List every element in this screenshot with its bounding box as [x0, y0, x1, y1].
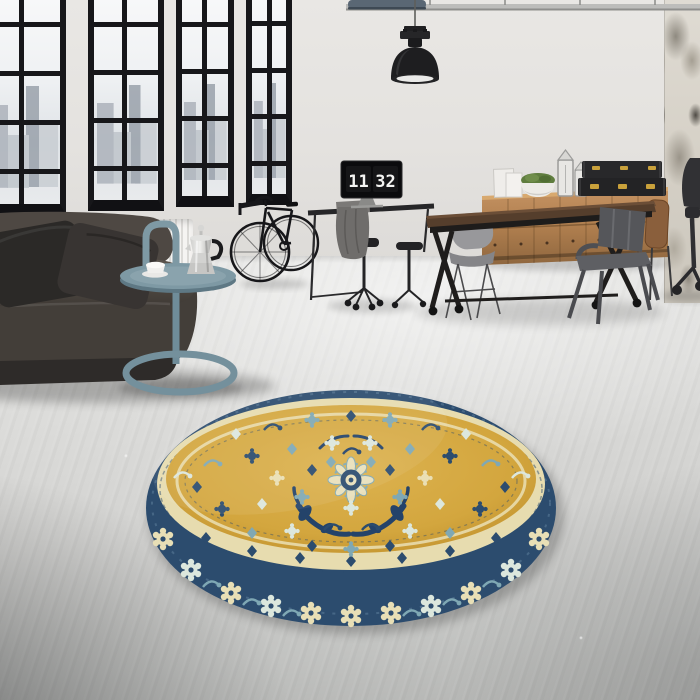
draped-jacket [336, 200, 370, 259]
loft-scene: 11 32 [0, 0, 700, 700]
clock-hours-digits: 11 [348, 172, 368, 192]
pendant-lamp [391, 0, 439, 84]
round-rug [141, 362, 564, 634]
desk-chair [672, 158, 700, 295]
sofa [0, 212, 197, 385]
desk [308, 206, 434, 300]
scene-graphics: 11 32 [0, 0, 700, 700]
storage-trunks [578, 161, 666, 196]
ceiling-pipe [346, 0, 700, 11]
picture-frames [494, 169, 522, 198]
bicycle [231, 197, 318, 281]
monitor-clock: 11 32 [341, 161, 402, 207]
clock-minutes-digits: 32 [375, 172, 395, 192]
